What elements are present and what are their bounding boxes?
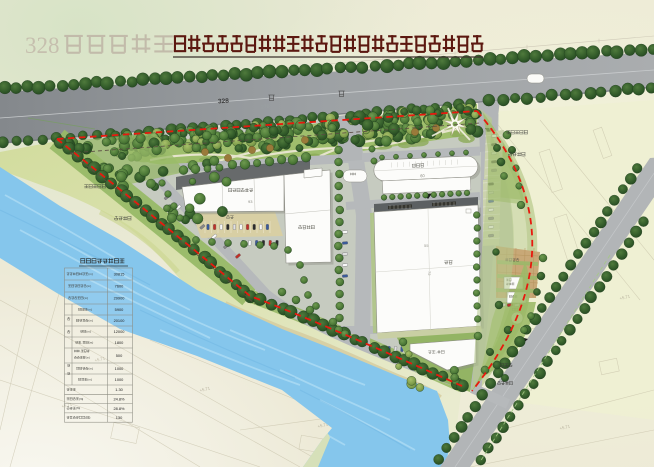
svg-text:): ) — [91, 377, 92, 381]
svg-text:,: , — [81, 340, 82, 344]
svg-text:20100: 20100 — [114, 318, 126, 323]
svg-text:): ) — [90, 284, 91, 288]
svg-text:1800: 1800 — [115, 340, 124, 345]
svg-text:): ) — [92, 272, 93, 276]
svg-text:): ) — [92, 366, 93, 370]
svg-text:30815: 30815 — [114, 272, 125, 277]
svg-text:93: 93 — [248, 199, 253, 204]
svg-text:12000: 12000 — [114, 329, 126, 334]
svg-text:): ) — [87, 296, 88, 300]
svg-text:): ) — [90, 329, 91, 333]
svg-text:): ) — [92, 340, 93, 344]
svg-text:,: , — [436, 350, 437, 354]
svg-text:): ) — [92, 318, 93, 322]
svg-text:7600: 7600 — [115, 284, 124, 289]
svg-text:500: 500 — [116, 353, 123, 358]
svg-text:): ) — [89, 415, 90, 419]
svg-text:): ) — [89, 355, 90, 359]
svg-text:1000: 1000 — [115, 366, 124, 371]
svg-text:): ) — [79, 406, 80, 410]
svg-text:130: 130 — [116, 415, 123, 420]
svg-text:1000: 1000 — [115, 377, 124, 382]
svg-text:328: 328 — [25, 33, 60, 58]
svg-text:29900: 29900 — [114, 296, 126, 301]
svg-text:24.8%: 24.8% — [113, 397, 125, 402]
svg-text:270: 270 — [261, 104, 270, 111]
svg-text:55: 55 — [424, 243, 429, 248]
svg-text:1.30: 1.30 — [115, 387, 123, 392]
svg-text:5900: 5900 — [115, 307, 124, 312]
svg-text:72: 72 — [427, 271, 432, 276]
svg-text:): ) — [91, 307, 92, 311]
svg-text:28.8%: 28.8% — [113, 406, 125, 411]
svg-text:): ) — [82, 397, 83, 401]
svg-text:328: 328 — [218, 98, 230, 106]
